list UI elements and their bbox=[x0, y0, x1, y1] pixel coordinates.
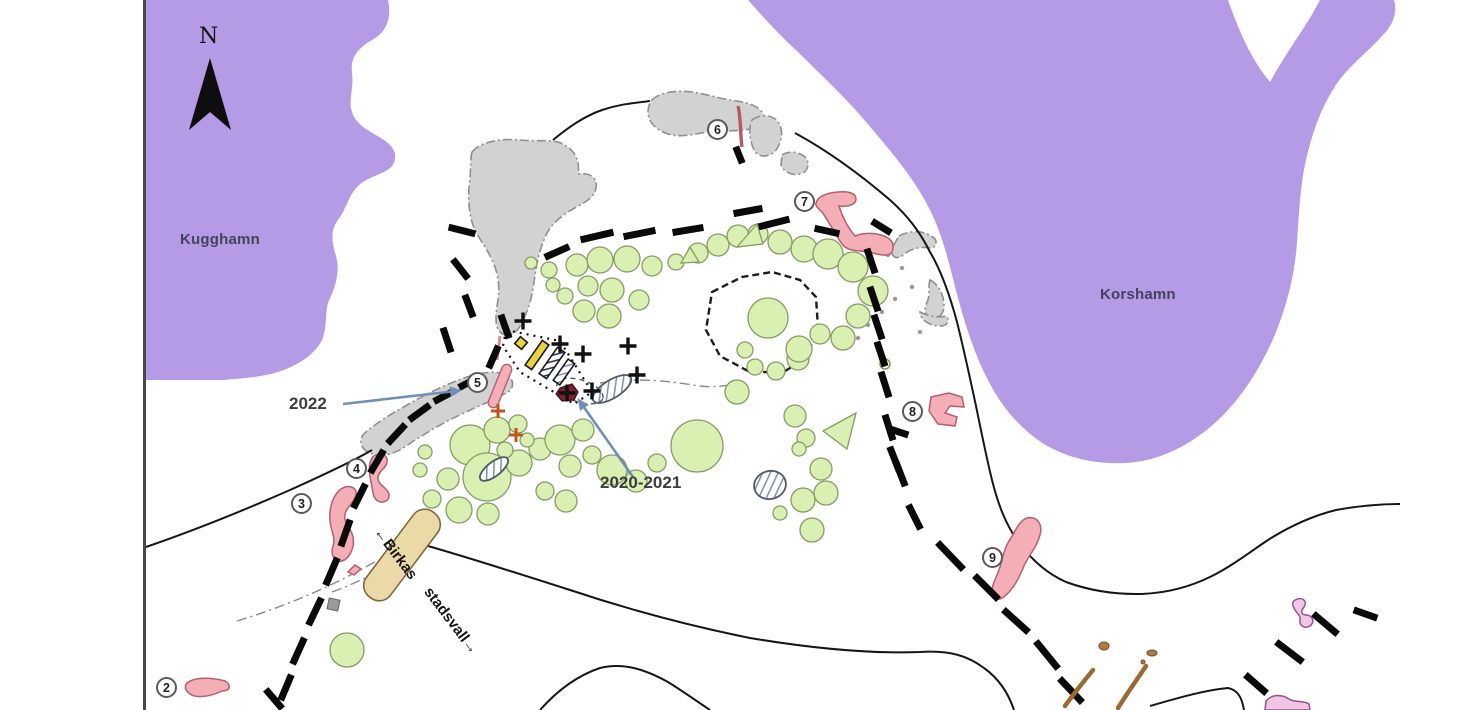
burial-mound bbox=[773, 506, 787, 520]
burial-mound bbox=[671, 420, 723, 472]
timber-blob bbox=[1099, 642, 1109, 650]
burial-mound bbox=[768, 230, 792, 254]
burial-mound bbox=[767, 362, 785, 380]
burial-mound bbox=[583, 446, 601, 464]
burial-mound bbox=[838, 252, 868, 282]
rock-dot bbox=[918, 330, 922, 334]
year-label-2022: 2022 bbox=[289, 394, 327, 414]
bay-label-korshamn: Korshamn bbox=[1100, 286, 1176, 303]
north-label: N bbox=[199, 24, 218, 49]
site-marker-5: 5 bbox=[467, 372, 488, 393]
timber-blob bbox=[1141, 660, 1145, 664]
burial-mound bbox=[737, 342, 753, 358]
burial-mound bbox=[572, 419, 594, 441]
burial-mound bbox=[786, 336, 812, 362]
burial-mound bbox=[573, 300, 595, 322]
burial-mound bbox=[846, 304, 870, 328]
burial-mound bbox=[509, 415, 527, 433]
site-map: { "title": "Birka harbour area excavatio… bbox=[0, 0, 1468, 710]
timber-blob bbox=[1147, 650, 1157, 656]
site-marker-6: 6 bbox=[707, 119, 728, 140]
year-label-2020-2021: 2020-2021 bbox=[600, 473, 681, 493]
burial-mound bbox=[810, 458, 832, 480]
burial-mound bbox=[707, 234, 729, 256]
burial-mound bbox=[792, 442, 806, 456]
site-marker-9: 9 bbox=[982, 547, 1003, 568]
burial-mound bbox=[814, 481, 838, 505]
burial-mound bbox=[557, 288, 573, 304]
burial-mound bbox=[484, 417, 510, 443]
burial-mound bbox=[578, 276, 598, 296]
left-margin bbox=[0, 0, 143, 710]
burial-mound bbox=[642, 256, 662, 276]
burial-mound bbox=[497, 442, 513, 458]
burial-mound bbox=[791, 488, 815, 512]
rock-dot bbox=[900, 266, 904, 270]
burial-mound bbox=[614, 246, 640, 272]
burial-mound bbox=[546, 278, 560, 292]
burial-mound bbox=[587, 247, 613, 273]
burial-mound bbox=[784, 405, 806, 427]
burial-mound bbox=[330, 633, 364, 667]
bay-label-kugghamn: Kugghamn bbox=[180, 231, 260, 248]
burial-mound bbox=[831, 326, 855, 350]
rock-dot bbox=[856, 336, 860, 340]
burial-mound bbox=[555, 490, 577, 512]
burial-mound bbox=[648, 454, 666, 472]
site-marker-4: 4 bbox=[346, 458, 367, 479]
rampart-dash bbox=[452, 228, 472, 233]
burial-mound bbox=[418, 445, 432, 459]
site-marker-7: 7 bbox=[794, 191, 815, 212]
rock-dot bbox=[910, 285, 914, 289]
burial-mound bbox=[536, 482, 554, 500]
rock-small bbox=[327, 598, 340, 611]
site-marker-8: 8 bbox=[902, 401, 923, 422]
burial-mound bbox=[800, 518, 824, 542]
burial-mound bbox=[559, 455, 581, 477]
rock-outcrop bbox=[750, 116, 782, 156]
burial-mound bbox=[413, 463, 427, 477]
burial-mound bbox=[600, 278, 624, 302]
burial-mound bbox=[423, 490, 441, 508]
burial-mound bbox=[446, 497, 472, 523]
map-canvas bbox=[0, 0, 1468, 710]
burial-mound bbox=[477, 503, 499, 525]
rampart-dash bbox=[893, 430, 905, 434]
burial-mound bbox=[437, 468, 459, 490]
site-marker-3: 3 bbox=[291, 493, 312, 514]
rampart-dash bbox=[676, 228, 700, 232]
burial-mound bbox=[597, 304, 621, 328]
rampart-dash bbox=[818, 229, 836, 233]
burial-mound bbox=[747, 359, 763, 375]
site-marker-2: 2 bbox=[156, 677, 177, 698]
rampart-dash bbox=[737, 150, 741, 160]
rampart-dash bbox=[737, 209, 759, 213]
burial-mound bbox=[748, 298, 788, 338]
rock-dot bbox=[893, 297, 897, 301]
burial-mound bbox=[566, 254, 588, 276]
burial-mound bbox=[810, 324, 830, 344]
burial-mound bbox=[525, 257, 537, 269]
burial-mound bbox=[629, 290, 649, 310]
burial-mound bbox=[725, 380, 749, 404]
rampart-dash bbox=[627, 231, 652, 236]
burial-mound bbox=[541, 262, 557, 278]
burial-mound bbox=[545, 425, 575, 455]
